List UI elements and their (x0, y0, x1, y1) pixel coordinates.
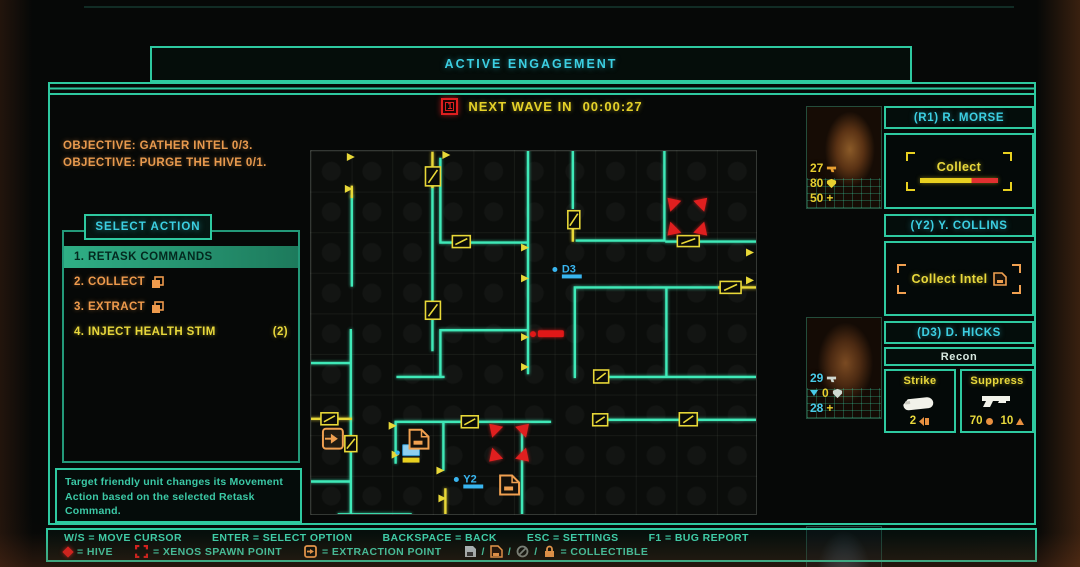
lock-icon (543, 545, 556, 558)
unit-stats: 29 0 28 + (810, 371, 843, 415)
strike-ammo: 2 (910, 415, 930, 427)
action-progress-bar (920, 178, 998, 183)
map-unit-xeno[interactable] (530, 330, 564, 337)
key-hint: ESC = SETTINGS (527, 532, 619, 544)
stat-health: 50 + (810, 191, 837, 205)
collect-intel-action-button[interactable]: Collect Intel (897, 264, 1020, 294)
door-marker (452, 236, 470, 248)
portrait-y-collins: 29 0 28 + (806, 317, 882, 419)
map-unit-d3[interactable]: D3 (552, 263, 581, 278)
legend-hive: = HIVE (64, 546, 113, 558)
card-title-r-morse: (R1) R. MORSE (884, 106, 1034, 129)
extraction-point-icon (323, 429, 343, 449)
door-marker (594, 370, 609, 383)
accuracy-icon (986, 418, 993, 425)
tooltip-box: Target friendly unit changes its Movemen… (55, 468, 302, 523)
door-marker (461, 416, 478, 428)
key-hint: F1 = BUG REPORT (649, 532, 749, 544)
legend-xenos-spawn: = XENOS SPAWN POINT (135, 545, 282, 558)
xenos-spawn-icon (135, 545, 148, 558)
objective-2: OBJECTIVE: PURGE THE HIVE 0/1. (63, 155, 267, 172)
device-icon (516, 545, 529, 558)
door-marker (593, 414, 608, 426)
door-marker (425, 167, 440, 186)
intel-file-icon (993, 272, 1007, 286)
extraction-icon (304, 545, 317, 558)
collectible-intel-icon (410, 430, 429, 449)
card-body-r-morse: Collect (884, 133, 1034, 209)
key-hint: ENTER = SELECT OPTION (212, 532, 353, 544)
menu-item-extract[interactable]: 3. EXTRACT (64, 296, 298, 318)
door-marker (425, 301, 440, 319)
disk-icon (464, 545, 477, 558)
select-action-title: SELECT ACTION (84, 214, 212, 240)
xenos-spawn-point (667, 198, 707, 236)
menu-item-inject-health-stim[interactable]: 4. INJECT HEALTH STIM (2) (64, 321, 298, 343)
map-legend-row: = HIVE = XENOS SPAWN POINT = EXTRACTION … (64, 545, 1019, 558)
weapon-icon (826, 163, 837, 174)
weapon-icon (826, 373, 837, 384)
suppress-damage: 10 (1001, 415, 1025, 427)
objectives: OBJECTIVE: GATHER INTEL 0/3. OBJECTIVE: … (63, 138, 267, 172)
objective-1: OBJECTIVE: GATHER INTEL 0/3. (63, 138, 267, 155)
card-body-y-collins: Collect Intel (884, 241, 1034, 316)
health-icon: + (826, 193, 833, 203)
collect-action-button[interactable]: Collect (906, 152, 1012, 191)
svg-text:Y2: Y2 (463, 474, 476, 486)
menu-item-retask-commands[interactable]: 1. RETASK COMMANDS (64, 246, 298, 268)
portrait-r-morse: 27 80 50 + (806, 106, 882, 209)
stim-count: (2) (273, 326, 288, 338)
door-marker (345, 436, 357, 452)
door-marker (321, 413, 338, 425)
page-title: ACTIVE ENGAGEMENT (445, 57, 618, 71)
action-menu: 1. RETASK COMMANDS 2. COLLECT 3. EXTRACT… (62, 230, 300, 463)
stat-armor: 80 (810, 176, 837, 190)
door-marker (677, 236, 699, 247)
stat-attack: 29 (810, 371, 843, 385)
ammo-icon (919, 417, 930, 426)
damage-icon (1016, 418, 1024, 425)
debuff-arrow-icon (810, 390, 818, 396)
unit-stats: 27 80 50 + (810, 161, 837, 205)
svg-text:D3: D3 (562, 263, 576, 275)
hive-icon (62, 546, 73, 557)
strike-weapon-icon (898, 390, 942, 412)
screen-edge-line (84, 6, 1014, 8)
stat-armor: 0 (810, 386, 843, 400)
key-hint: BACKSPACE = BACK (382, 532, 496, 544)
suppress-pistol-icon (980, 393, 1014, 409)
menu-item-collect[interactable]: 2. COLLECT (64, 271, 298, 293)
door-marker (679, 413, 697, 426)
shield-icon (832, 388, 843, 399)
active-engagement-tab: ACTIVE ENGAGEMENT (150, 46, 912, 82)
card-title-y-collins: (Y2) Y. COLLINS (884, 214, 1034, 237)
wave-label: NEXT WAVE IN (468, 99, 572, 114)
strike-ability-button[interactable]: Strike 2 (884, 369, 956, 433)
wave-timer: 00:00:27 (583, 99, 643, 114)
health-icon: + (826, 403, 833, 413)
door-marker (568, 211, 580, 229)
game-screen: ACTIVE ENGAGEMENT 1 NEXT WAVE IN 00:00:2… (0, 0, 1080, 567)
tactical-map: D3 Y2 (310, 150, 757, 515)
shield-icon (826, 178, 837, 189)
intel-stack-icon (151, 301, 164, 314)
legend-extraction: = EXTRACTION POINT (304, 545, 442, 558)
intel-stack-icon (151, 276, 164, 289)
key-hint: W/S = MOVE CURSOR (64, 532, 182, 544)
legend-collectible: / / / = COLLECTIBLE (464, 545, 649, 558)
stat-health: 28 + (810, 401, 843, 415)
folder-icon (490, 545, 503, 558)
map-unit-y2[interactable]: Y2 (454, 474, 483, 489)
suppress-ability-button[interactable]: Suppress 70 10 (960, 369, 1034, 433)
collectible-intel-icon (500, 476, 519, 495)
stat-attack: 27 (810, 161, 837, 175)
card-role-label: Recon (884, 347, 1034, 366)
help-bar: W/S = MOVE CURSOR ENTER = SELECT OPTION … (46, 528, 1037, 562)
card-title-d-hicks: (D3) D. HICKS (884, 321, 1034, 344)
suppress-accuracy: 70 (970, 415, 993, 427)
wave-number-icon: 1 (441, 98, 458, 115)
map-canvas: D3 Y2 (311, 151, 756, 514)
door-marker (720, 281, 741, 293)
key-hints-row: W/S = MOVE CURSOR ENTER = SELECT OPTION … (64, 532, 1019, 544)
